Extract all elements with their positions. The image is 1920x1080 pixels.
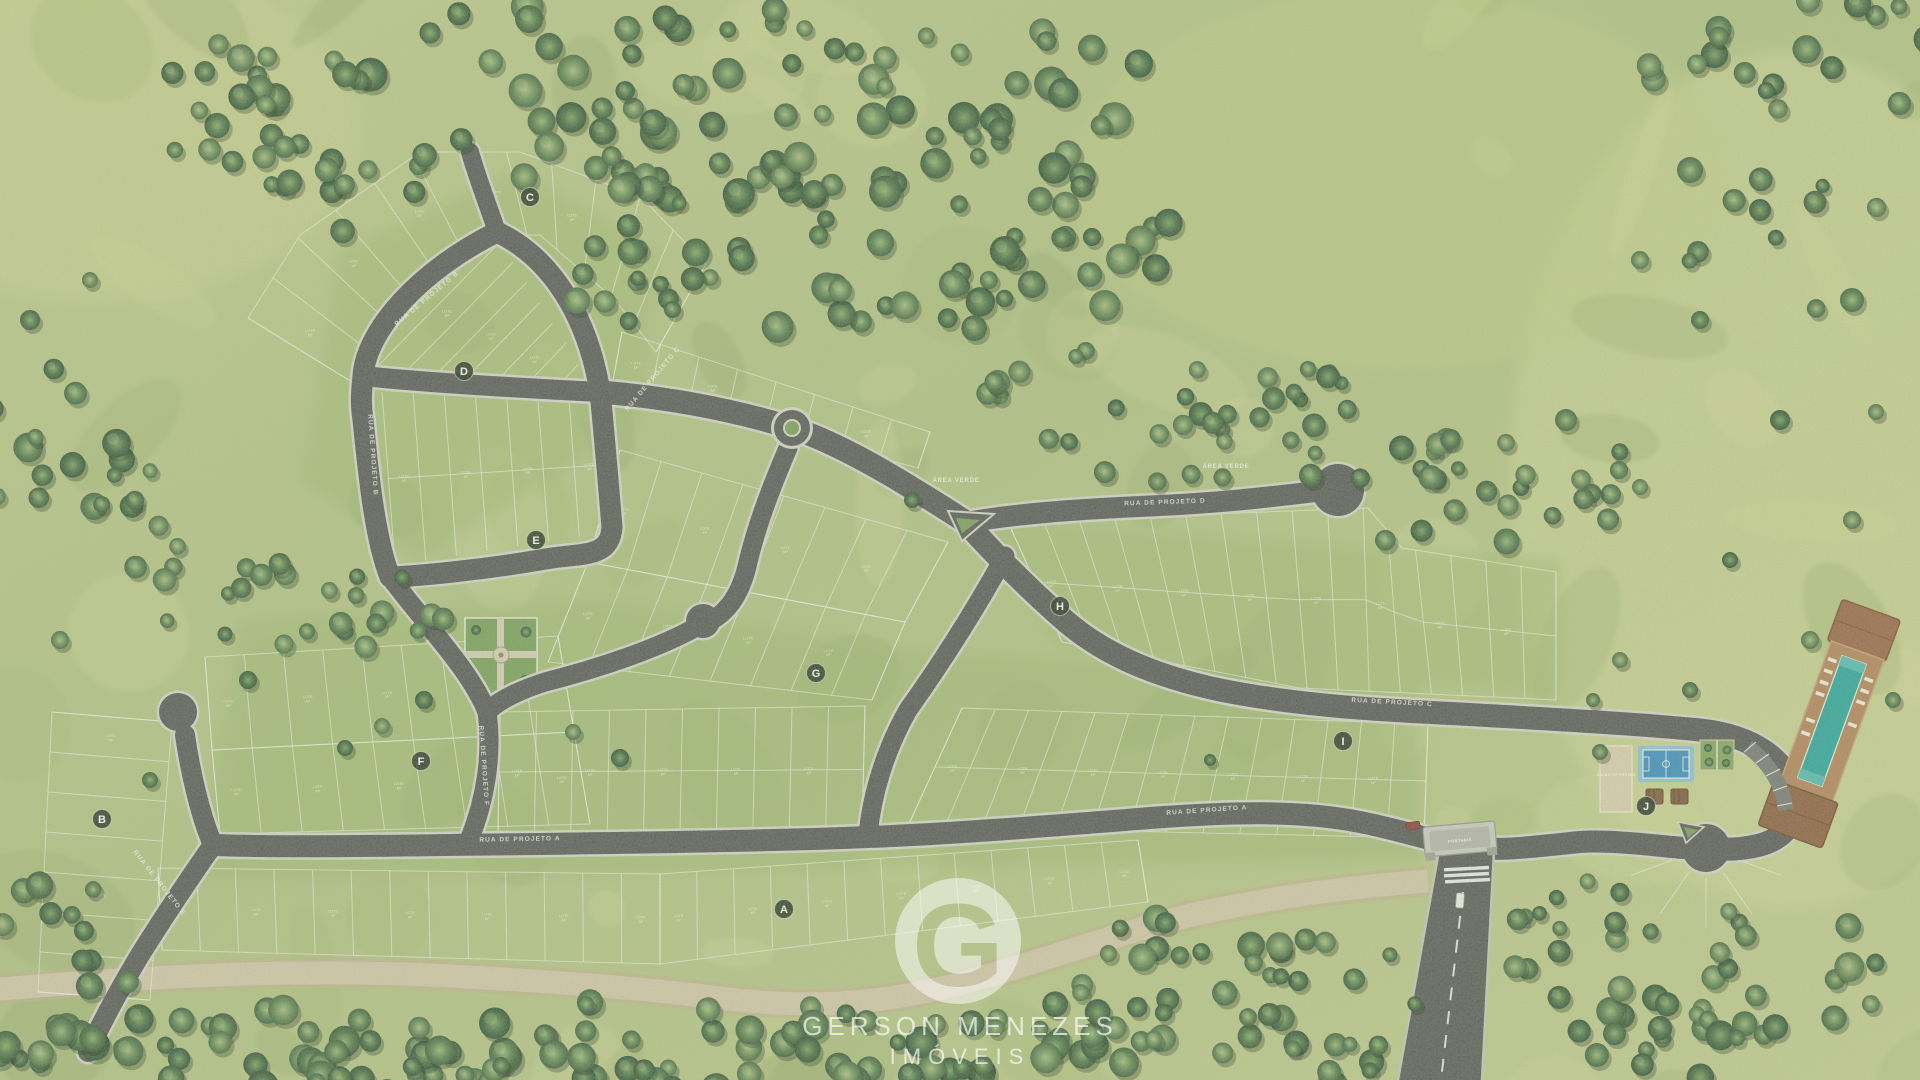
watermark-line2: IMÓVEIS bbox=[890, 1044, 1031, 1069]
watermark-line1: GERSON MENEZES bbox=[802, 1011, 1118, 1041]
site-plan-svg: G LOTEM²LOTEM²LOTEM²LOTEM²LOTEM²LOTEM²LO… bbox=[0, 0, 1920, 1080]
masterplan-aerial-view: G LOTEM²LOTEM²LOTEM²LOTEM²LOTEM²LOTEM²LO… bbox=[0, 0, 1920, 1080]
